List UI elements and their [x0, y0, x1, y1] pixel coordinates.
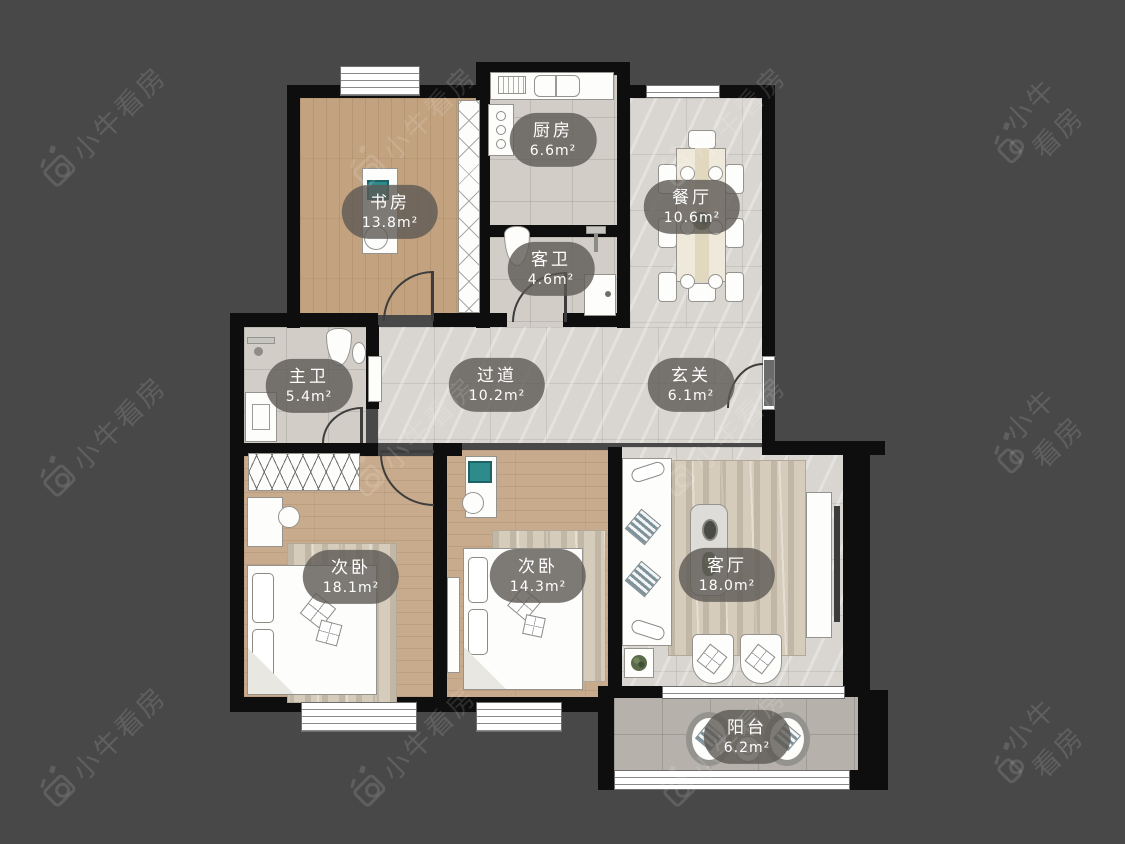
bay-window-bedroom-a [301, 702, 417, 732]
floor-plan-canvas: 书房 13.8m² 厨房 6.6m² 餐厅 10.6m² 客卫 4.6m² 主卫… [0, 0, 1125, 844]
master-bath-stool [352, 342, 366, 364]
room-area: 10.6m² [664, 209, 720, 227]
room-area: 6.1m² [668, 387, 715, 405]
dining-chair [688, 130, 716, 149]
bed-cushion [522, 614, 546, 638]
pillow [468, 557, 488, 603]
bedroom-a-desk [247, 497, 283, 547]
sink-basin [252, 404, 270, 430]
living-sofa [622, 458, 672, 646]
room-label-master-bath: 主卫 5.4m² [266, 359, 353, 413]
brand-logo-icon [351, 773, 387, 809]
room-label-living: 客厅 18.0m² [679, 548, 775, 602]
room-name: 主卫 [286, 366, 333, 388]
wall [287, 85, 300, 328]
bedroom-a-wardrobe [248, 453, 360, 491]
door-leaf-study [431, 271, 434, 321]
room-area: 5.4m² [286, 388, 333, 406]
room-name: 玄关 [668, 365, 715, 387]
room-area: 13.8m² [362, 214, 418, 232]
room-label-bedroom-a: 次卧 18.1m² [303, 550, 399, 604]
master-bath-drain [254, 347, 263, 356]
brand-watermark-text: 小牛看房 [994, 66, 1094, 166]
dining-chair [658, 272, 677, 302]
room-name: 阳台 [724, 717, 771, 739]
bay-window-study [340, 66, 420, 96]
wall [230, 313, 244, 712]
brand-watermark: 小牛看房 [976, 66, 1095, 185]
brand-logo-icon [41, 773, 77, 809]
room-label-guest-bath: 客卫 4.6m² [508, 242, 595, 296]
room-name: 次卧 [323, 557, 379, 579]
burner-icon [496, 139, 506, 149]
sofa-bolster [630, 618, 667, 642]
pillow [252, 573, 274, 623]
brand-watermark-text: 小牛看房 [994, 376, 1094, 476]
wall [843, 441, 870, 697]
bay-window-bedroom-b [476, 702, 562, 732]
blanket-fold [248, 648, 294, 694]
wall [433, 313, 507, 327]
room-name: 厨房 [530, 120, 577, 142]
room-name: 客卫 [528, 249, 575, 271]
room-area: 18.1m² [323, 579, 379, 597]
brand-logo-icon [995, 136, 1024, 165]
guest-bath-shower-fixture [586, 226, 606, 234]
kitchen-dish-rack [498, 76, 526, 94]
side-table-plant [631, 655, 647, 671]
faucet-icon [605, 291, 611, 297]
kitchen-sink [534, 75, 580, 97]
door-leaf-bedroom-a [380, 450, 434, 453]
wall [598, 686, 662, 698]
brand-watermark: 小牛看房 [36, 676, 175, 815]
brand-logo-icon [995, 446, 1024, 475]
wall [762, 410, 775, 445]
wall [608, 447, 622, 697]
brand-logo-icon [995, 756, 1024, 785]
window-balcony [614, 770, 850, 790]
room-area: 14.3m² [510, 578, 566, 596]
brand-watermark: 小牛看房 [976, 686, 1095, 805]
guest-bath-shower-hose [594, 234, 598, 252]
door-leaf-master-bath [360, 407, 363, 443]
blanket-fold [464, 647, 506, 689]
wall [433, 443, 447, 697]
study-wardrobe [458, 100, 480, 313]
brand-watermark: 小牛看房 [36, 56, 175, 195]
room-name: 客厅 [699, 555, 755, 577]
room-name: 次卧 [510, 556, 566, 578]
room-area: 18.0m² [699, 577, 755, 595]
master-bath-shower-fixture [247, 337, 275, 344]
burner-icon [496, 125, 506, 135]
room-area: 4.6m² [528, 271, 575, 289]
window-dining [646, 85, 720, 98]
bedroom-b-artwork [468, 461, 492, 483]
brand-watermark-text: 小牛看房 [62, 56, 174, 168]
hallway-cabinet [368, 356, 382, 402]
bedroom-b-wardrobe-niche [447, 577, 460, 673]
brand-watermark: 小牛看房 [36, 366, 175, 505]
brand-watermark: 小牛看房 [976, 376, 1095, 495]
room-area: 6.6m² [530, 142, 577, 160]
room-area: 10.2m² [469, 387, 525, 405]
room-label-entry: 玄关 6.1m² [648, 358, 735, 412]
room-label-hallway: 过道 10.2m² [449, 358, 545, 412]
room-name: 过道 [469, 365, 525, 387]
dining-chair [725, 272, 744, 302]
brand-watermark-text: 小牛看房 [62, 366, 174, 478]
room-label-kitchen: 厨房 6.6m² [510, 113, 597, 167]
brand-watermark-text: 小牛看房 [62, 676, 174, 788]
brand-watermark-text: 小牛看房 [994, 686, 1094, 786]
room-name: 书房 [362, 192, 418, 214]
wall [230, 313, 378, 327]
brand-logo-icon [41, 153, 77, 189]
wall [762, 85, 775, 356]
place-setting [708, 166, 723, 181]
room-label-study: 书房 13.8m² [342, 185, 438, 239]
room-label-balcony: 阳台 6.2m² [704, 710, 791, 764]
burner-icon [496, 111, 506, 121]
tv-screen [834, 506, 840, 622]
room-area: 6.2m² [724, 739, 771, 757]
vase-icon [702, 519, 718, 541]
room-name: 餐厅 [664, 187, 720, 209]
brand-logo-icon [41, 463, 77, 499]
sofa-bolster [630, 460, 667, 484]
sliding-door-balcony [662, 686, 845, 699]
place-setting [680, 166, 695, 181]
room-label-bedroom-b: 次卧 14.3m² [490, 549, 586, 603]
place-setting [708, 274, 723, 289]
tv-console [806, 492, 832, 638]
room-label-dining: 餐厅 10.6m² [644, 180, 740, 234]
wall [617, 62, 630, 328]
place-setting [680, 274, 695, 289]
bedroom-a-chair [278, 506, 300, 528]
bedroom-b-chair [462, 492, 484, 514]
entry-door-leaf [764, 360, 774, 406]
